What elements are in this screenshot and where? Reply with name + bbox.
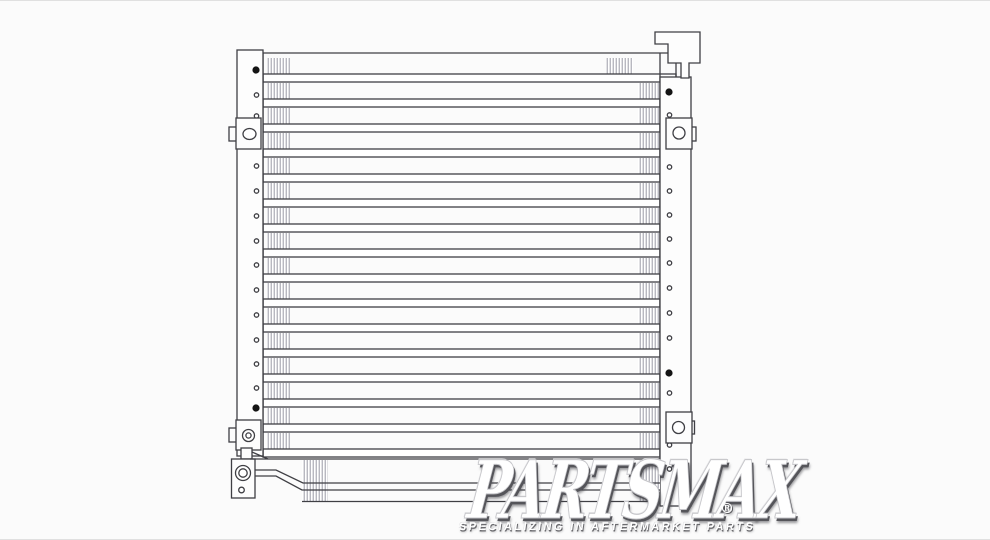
fin-section: [638, 158, 659, 174]
tube: [263, 174, 660, 182]
mounting-hole: [667, 467, 671, 471]
bracket-hole-inner: [246, 433, 251, 438]
mounting-hole: [667, 261, 671, 265]
fitting-hole: [239, 487, 245, 493]
fin-section: [267, 158, 290, 174]
tube: [263, 124, 660, 132]
tube: [263, 374, 660, 382]
fin-section: [638, 183, 659, 199]
fin-section: [267, 408, 290, 424]
fin-section: [267, 358, 290, 374]
fin-section: [638, 283, 659, 299]
tube: [263, 149, 660, 157]
sub-cooler-section: [250, 459, 660, 502]
fin-section: [267, 333, 290, 349]
fin-section: [638, 108, 659, 124]
fin-section: [267, 183, 290, 199]
mounting-hole: [667, 311, 671, 315]
tube: [263, 99, 660, 107]
mounting-hole: [667, 113, 671, 117]
product-image: PARTSMAX ® SPECIALIZING IN AFTERMARKET P…: [0, 0, 990, 540]
mounting-bracket-bottom-right: [666, 412, 695, 443]
weld-dot: [665, 369, 672, 376]
fin-section: [267, 258, 290, 274]
fin-section: [606, 58, 633, 74]
bracket-hole: [243, 129, 256, 140]
mounting-bracket-bottom-left: [229, 420, 261, 450]
weld-dot: [252, 404, 259, 411]
left-header-tank: [237, 50, 263, 456]
tube: [263, 349, 660, 357]
mounting-hole: [667, 336, 671, 340]
mounting-bracket-top-left: [229, 118, 261, 149]
mounting-hole: [667, 165, 671, 169]
tube: [263, 449, 660, 457]
fin-section: [638, 433, 659, 449]
tube: [263, 324, 660, 332]
mounting-bracket-top-right: [666, 118, 696, 149]
port-inner-ring: [239, 469, 247, 477]
fin-section: [267, 308, 290, 324]
tube: [263, 299, 660, 307]
tube: [263, 224, 660, 232]
fin-section: [267, 233, 290, 249]
mounting-hole: [254, 239, 258, 243]
fin-section: [267, 108, 290, 124]
tube: [263, 249, 660, 257]
inlet-fitting: [655, 32, 700, 78]
fin-section: [267, 83, 290, 99]
mounting-hole: [254, 313, 258, 317]
mounting-hole: [667, 189, 671, 193]
fin-section: [267, 383, 290, 399]
mounting-hole: [254, 164, 258, 168]
tube: [263, 74, 676, 82]
fin-section: [638, 208, 659, 224]
mounting-hole: [254, 362, 258, 366]
fin-section: [267, 133, 290, 149]
mounting-hole: [254, 93, 258, 97]
mounting-hole: [667, 495, 671, 499]
mounting-hole: [667, 213, 671, 217]
fin-section: [267, 208, 290, 224]
fin-section: [638, 383, 659, 399]
bracket-hole: [673, 422, 685, 434]
fin-section: [638, 408, 659, 424]
mounting-hole: [667, 286, 671, 290]
tube: [263, 399, 660, 407]
weld-dot: [252, 66, 259, 73]
mounting-hole: [254, 288, 258, 292]
fin-section: [638, 333, 659, 349]
mounting-hole: [254, 386, 258, 390]
tube: [263, 424, 660, 432]
mounting-hole: [667, 391, 671, 395]
condenser-drawing: [229, 32, 700, 506]
condenser-diagram: [0, 0, 990, 540]
fin-section: [638, 133, 659, 149]
bracket-hole: [673, 127, 685, 139]
fin-section: [638, 308, 659, 324]
fin-section: [267, 283, 290, 299]
fin-section: [638, 258, 659, 274]
mounting-hole: [254, 189, 258, 193]
tube: [263, 199, 660, 207]
tube: [263, 274, 660, 282]
weld-dot: [665, 88, 672, 95]
fin-section: [639, 460, 660, 501]
fin-section: [638, 83, 659, 99]
mounting-hole: [254, 338, 258, 342]
fin-section: [638, 358, 659, 374]
mounting-hole: [254, 263, 258, 267]
mounting-hole: [667, 237, 671, 241]
fin-section: [302, 460, 328, 501]
fin-section: [267, 433, 290, 449]
mounting-hole: [254, 214, 258, 218]
fin-section: [267, 58, 290, 74]
condenser-core: [263, 53, 676, 457]
fin-section: [638, 233, 659, 249]
fitting-neck: [241, 448, 252, 459]
